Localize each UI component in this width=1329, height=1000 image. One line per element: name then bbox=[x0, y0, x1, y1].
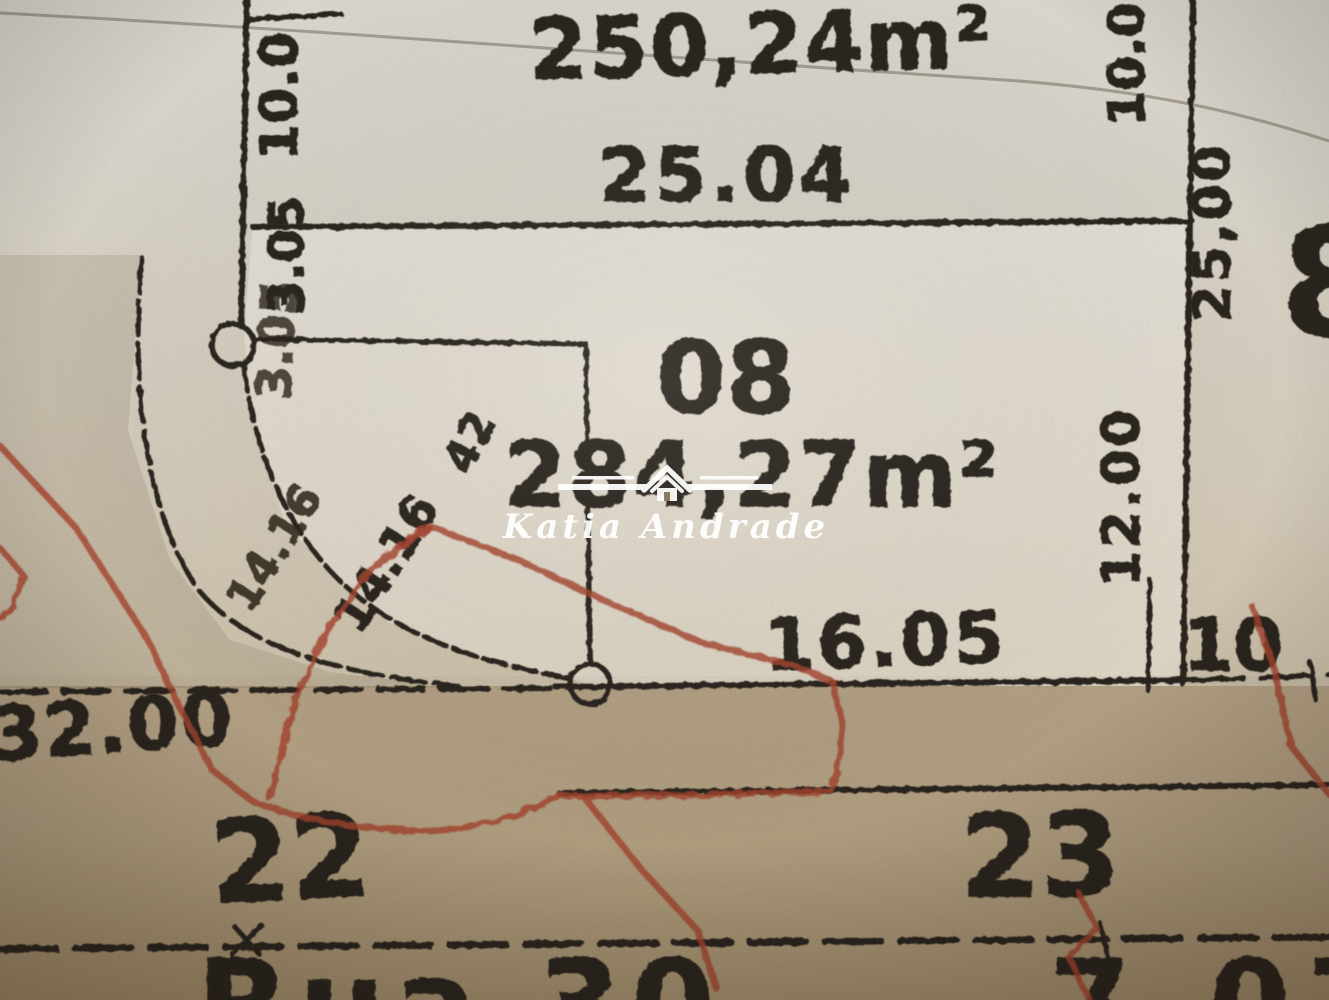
watermark-rule-right bbox=[688, 484, 772, 490]
watermark-rule-right-thin bbox=[700, 476, 758, 480]
watermark-rule-left-thin bbox=[572, 476, 634, 480]
plat-map-canvas: 250,24m² 25.04 10.0 3.05 3.05 25,00 10.0… bbox=[0, 0, 1329, 1000]
watermark-name: Katia Andrade bbox=[502, 507, 829, 547]
survey-map-photo: 250,24m² 25.04 10.0 3.05 3.05 25,00 10.0… bbox=[0, 0, 1329, 1000]
watermark-rule-left bbox=[558, 484, 646, 490]
